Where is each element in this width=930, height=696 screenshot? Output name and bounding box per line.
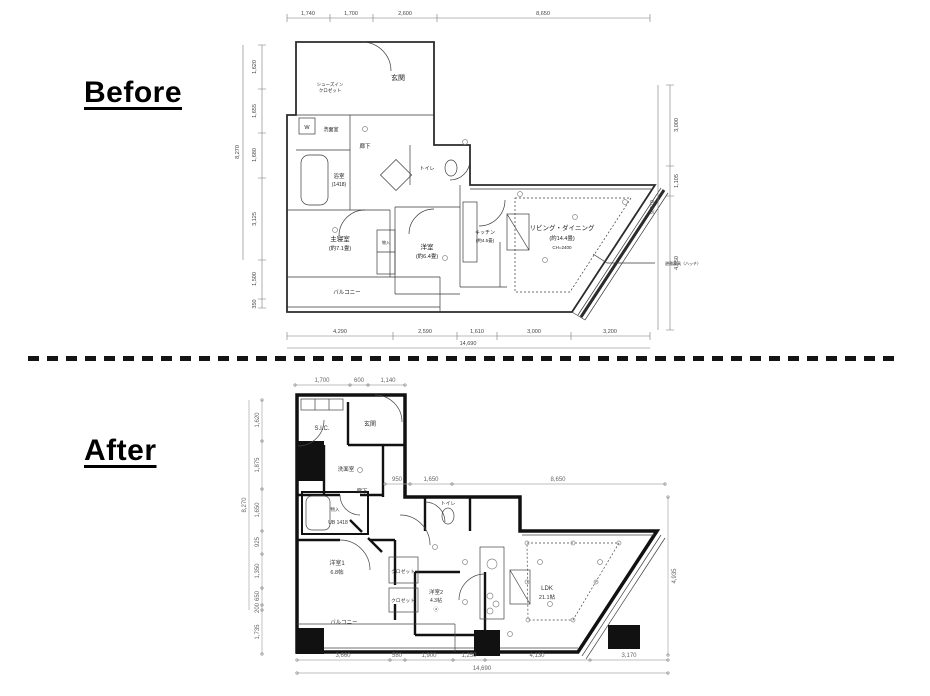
dim-label: 4,935 <box>672 568 678 584</box>
pillar <box>296 441 324 481</box>
after-balcony-label: バルコニー <box>330 619 357 626</box>
after-ldk-size: 21.1帖 <box>539 593 556 601</box>
dim-label: 1,875 <box>255 457 261 473</box>
dim-label: 2,590 <box>418 329 432 335</box>
before-heading: Before <box>84 76 182 110</box>
after-closet2-label: クロゼット <box>391 597 415 604</box>
before-storage-label: 物入 <box>382 239 390 245</box>
before-master-bedroom-size: (約7.1畳) <box>329 244 351 252</box>
before-washroom-label: 洗面室 <box>323 126 338 133</box>
dim-label: 1,620 <box>255 412 261 428</box>
before-living-dining-size: (約14.4畳) <box>549 234 575 242</box>
dim-label: 4,950 <box>674 256 680 270</box>
before-shoe-closet-label-1: シューズイン <box>317 81 344 88</box>
dim-label: 1,610 <box>470 329 484 335</box>
dim-label: 1,655 <box>252 104 258 118</box>
before-floorplan: 玄関 シューズイン クロゼット 洗面室 W 浴室 (1418) 廊下 トイレ 主… <box>215 2 720 354</box>
after-washroom-label: 洗面室 <box>338 465 355 473</box>
before-balcony-label: バルコニー <box>333 289 360 296</box>
before-kitchen-label: キッチン <box>475 230 495 236</box>
after-storage-label: 物入 <box>331 506 340 513</box>
after-entrance-label: 玄関 <box>364 420 376 428</box>
dim-label: 1,680 <box>252 148 258 162</box>
before-interior-walls <box>287 42 668 320</box>
after-bedroom2-mark: ⓐ <box>433 606 438 613</box>
after-hallway-label: 廊下 <box>356 487 368 495</box>
dim-label: 1,105 <box>674 174 680 188</box>
dim-total-label: 9,070 <box>650 200 656 214</box>
dim-label: 8,650 <box>536 11 550 17</box>
dim-label: 925 <box>255 536 261 547</box>
before-entrance-label: 玄関 <box>391 73 405 82</box>
before-bathroom-size: (1418) <box>332 182 347 188</box>
before-after-floorplan-sheet: Before After <box>0 0 930 696</box>
after-bedroom1-label: 洋室1 <box>329 559 345 567</box>
dashed-divider <box>28 356 902 361</box>
before-bathroom-label: 浴室 <box>333 172 345 180</box>
dim-label: 950 <box>392 477 403 483</box>
before-master-bedroom-label: 主寝室 <box>330 234 350 243</box>
before-hallway-label: 廊下 <box>359 142 371 150</box>
dim-label: 1,650 <box>423 477 439 483</box>
dim-label: 3,000 <box>527 329 541 335</box>
dim-label: 3,200 <box>603 329 617 335</box>
before-living-dining-label: リビング・ダイニング <box>530 223 596 232</box>
before-bedroom-label: 洋室 <box>421 242 435 251</box>
dim-label: 3,000 <box>674 118 680 132</box>
dim-label: 4,130 <box>529 653 545 659</box>
after-heading: After <box>84 434 157 468</box>
dim-label: 1,700 <box>314 378 330 384</box>
dim-total-label: 14,690 <box>460 341 477 347</box>
after-ldk-label: LDK <box>541 586 553 592</box>
dim-label: 1,140 <box>380 378 396 384</box>
before-dimensions: 1,740 1,700 2,600 8,650 4,290 2,590 1,61… <box>235 11 680 348</box>
after-bedroom1-size: 6.8帖 <box>330 568 344 576</box>
dim-label: 3,125 <box>252 212 258 226</box>
before-evac-note: 避難器具（ハッチ） <box>665 260 701 266</box>
dim-label: 580 <box>392 653 403 659</box>
dim-label: 600 <box>354 378 365 384</box>
dim-label: 3,660 <box>335 653 351 659</box>
after-outer-walls <box>297 395 657 652</box>
dim-label: 1,900 <box>421 653 437 659</box>
before-living-dining-ch: CH=2400 <box>552 245 572 250</box>
dim-label: 200 <box>255 602 261 613</box>
before-kitchen-size: (約4.5畳) <box>476 237 495 244</box>
dim-label: 1,700 <box>344 11 358 17</box>
after-unit-bath-label: UB 1418 <box>328 520 348 526</box>
dim-label: 350 <box>252 299 258 308</box>
dim-label: 8,650 <box>550 477 566 483</box>
pillar <box>608 625 640 649</box>
before-shoe-closet-label-2: クロゼット <box>319 87 342 94</box>
pillar <box>296 628 324 654</box>
after-floorplan: S.I.C. 玄関 洗面室 物入 UB 1418 廊下 トイレ 洋室1 6.8帖… <box>240 372 720 696</box>
dim-label: 4,290 <box>333 329 347 335</box>
after-bedroom2-label: 洋室2 <box>429 588 443 596</box>
dim-label: 3,170 <box>621 653 637 659</box>
after-bedroom2-size: 4.3帖 <box>430 597 442 604</box>
after-toilet-label: トイレ <box>440 501 455 507</box>
dim-label: 2,600 <box>398 11 412 17</box>
after-closet1-label: クロゼット <box>391 568 415 575</box>
dim-label: 650 <box>255 590 261 601</box>
dim-label: 1,250 <box>461 653 477 659</box>
dim-total-label: 8,270 <box>235 145 241 159</box>
dim-label: 1,350 <box>255 563 261 579</box>
before-bedroom-size: (約6.4畳) <box>416 252 438 260</box>
before-toilet-label: トイレ <box>419 166 434 172</box>
before-washer-label: W <box>304 125 310 131</box>
after-sic-label: S.I.C. <box>314 426 329 432</box>
dim-label: 1,735 <box>255 624 261 640</box>
dim-label: 1,650 <box>255 502 261 518</box>
dim-label: 1,740 <box>301 11 315 17</box>
dim-total-label: 8,270 <box>242 497 248 513</box>
pillar <box>474 630 500 656</box>
dim-label: 1,620 <box>252 60 258 74</box>
dim-label: 1,500 <box>252 272 258 286</box>
dim-total-label: 14,690 <box>473 666 492 672</box>
